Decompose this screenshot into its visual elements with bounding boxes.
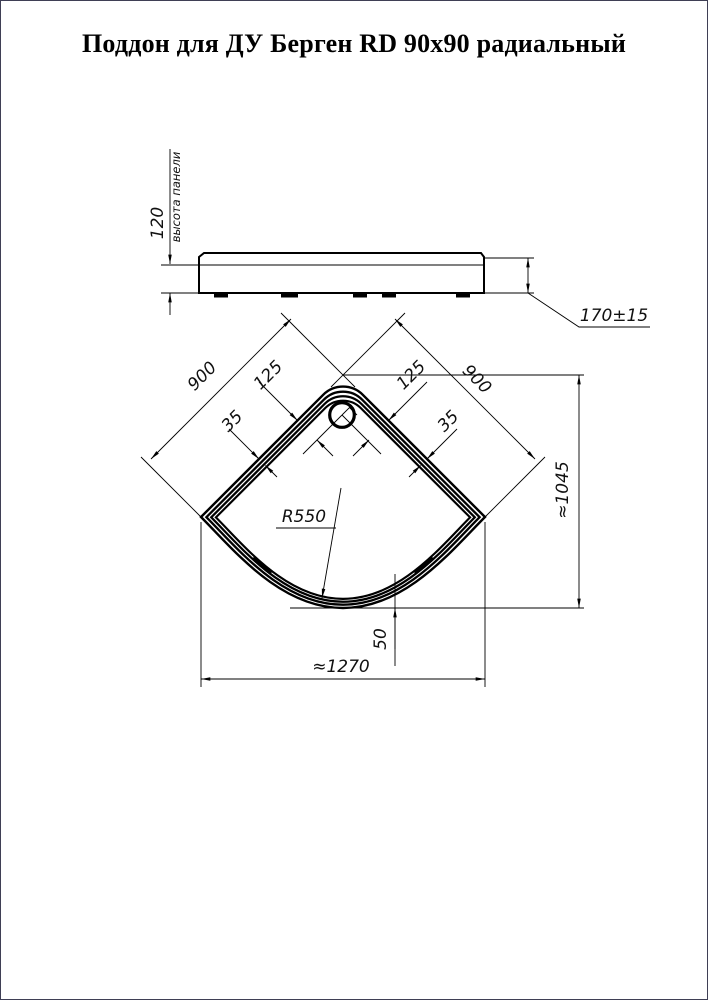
technical-drawing-canvas: 120 высота панели 170±15 <box>1 1 707 999</box>
dim-overall-height-value: 170±15 <box>580 306 648 326</box>
drawing-sheet: Поддон для ДУ Берген RD 90x90 радиальный <box>0 0 708 1000</box>
side-view: 120 высота панели 170±15 <box>148 149 650 327</box>
dim-overall-width-value: ≈1270 <box>312 657 370 677</box>
dim-drain-offset-right-value: 125 <box>393 357 430 394</box>
dim-rim-width-left-value: 35 <box>218 407 247 436</box>
dim-side-right-value: 900 <box>458 361 495 398</box>
dim-side-left-value: 900 <box>184 358 221 395</box>
dim-side-right: 900 <box>395 319 535 459</box>
dim-overall-height: 170±15 <box>528 258 650 327</box>
side-view-body-outline <box>199 253 484 293</box>
ext-corner-left <box>281 313 355 387</box>
dim-overall-depth-value: ≈1045 <box>553 461 573 519</box>
ext-right-point-diag <box>482 457 545 520</box>
dim-front-offset-value: 50 <box>371 628 391 650</box>
dim-drain-offset-left-value: 125 <box>250 357 287 394</box>
ext-drain-right <box>342 415 381 454</box>
dim-panel-height-label: высота панели <box>169 151 183 242</box>
dim-overall-width: ≈1270 <box>201 657 485 679</box>
dim-panel-height: 120 высота панели <box>148 149 183 315</box>
dim-overall-depth: ≈1045 <box>553 375 579 608</box>
dim-rim-width-right-value: 35 <box>434 407 463 436</box>
ext-left-point-diag <box>141 457 204 520</box>
plan-view: 900 900 125 125 3 <box>141 313 584 687</box>
dim-front-offset: 50 <box>371 574 395 666</box>
dim-side-left: 900 <box>151 319 291 459</box>
ext-corner-right <box>331 313 405 387</box>
dim-panel-height-value: 120 <box>148 207 168 239</box>
dim-front-radius-value: R550 <box>282 507 326 527</box>
